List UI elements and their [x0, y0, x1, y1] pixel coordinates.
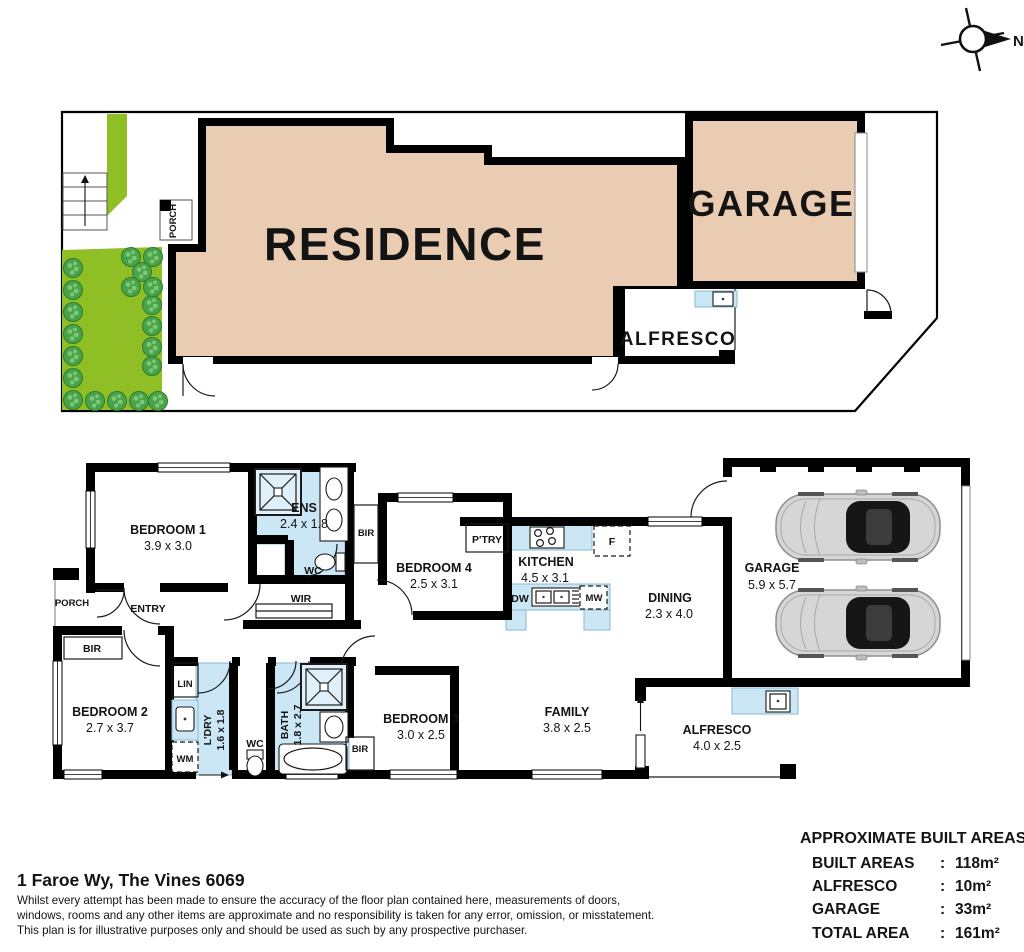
site-residence-label: RESIDENCE: [264, 218, 546, 270]
address: 1 Faroe Wy, The Vines 6069: [17, 870, 245, 890]
area-row-separator: :: [940, 901, 945, 918]
alfresco-dims: 4.0 x 2.5: [693, 739, 741, 753]
bedroom4-dims: 2.5 x 3.1: [410, 577, 458, 591]
bedroom4-label: BEDROOM 4: [396, 561, 472, 575]
wir-label: WIR: [291, 593, 312, 605]
window: [648, 517, 702, 526]
car-2: [776, 586, 940, 660]
laundry-trough-icon: [172, 700, 198, 740]
bath-label: BATH: [279, 711, 291, 739]
area-row-separator: :: [940, 855, 945, 872]
site-alfresco-label: ALFRESCO: [620, 329, 737, 350]
areas-table-title: APPROXIMATE BUILT AREAS: [800, 830, 1024, 847]
wm-label: WM: [177, 754, 194, 765]
mw-label: MW: [586, 593, 603, 604]
cooktop-icon: [530, 527, 564, 548]
ens-dims: 2.4 x 1.8: [280, 517, 328, 531]
family-label: FAMILY: [545, 705, 590, 719]
laundry-dims: 1.6 x 1.8: [215, 709, 227, 750]
bedroom3-dims: 3.0 x 2.5: [397, 728, 445, 742]
ens-label: ENS: [291, 501, 317, 515]
bath-shower-icon: [301, 664, 347, 710]
kitchen-dims: 4.5 x 3.1: [521, 571, 569, 585]
car-1: [776, 490, 940, 564]
dw-label: DW: [511, 593, 529, 605]
garage-label: GARAGE: [745, 561, 800, 575]
bir3-label: BIR: [352, 744, 369, 755]
island-cabinet: [584, 610, 610, 630]
alfresco-sink-icon: [766, 691, 790, 712]
window: [532, 770, 602, 779]
bedroom1-dims: 3.9 x 3.0: [144, 539, 192, 553]
window: [158, 463, 230, 472]
dining-label: DINING: [648, 591, 692, 605]
garage-roller-door: [962, 486, 970, 660]
window: [398, 493, 453, 502]
wir-shelf: [256, 604, 332, 618]
bath-vanity-icon: [320, 712, 348, 742]
area-row-value: 161m²: [955, 925, 1000, 942]
site-garage-label: GARAGE: [687, 183, 854, 224]
area-row-separator: :: [940, 878, 945, 895]
lin-label: LIN: [177, 679, 192, 690]
bedroom1-label: BEDROOM 1: [130, 523, 206, 537]
bath-dims: 1.8 x 2.7: [292, 704, 304, 745]
site-alfresco: ALFRESCO: [617, 289, 737, 364]
site-garage-door: [855, 133, 867, 272]
area-row-value: 10m²: [955, 878, 991, 895]
window: [390, 770, 457, 779]
area-row-label: TOTAL AREA: [812, 925, 910, 942]
family-dims: 3.8 x 2.5: [543, 721, 591, 735]
bedroom3-label: BEDROOM 3: [383, 712, 459, 726]
garage-dims: 5.9 x 5.7: [748, 578, 796, 592]
alfresco-label: ALFRESCO: [683, 723, 752, 737]
area-row-separator: :: [940, 925, 945, 942]
alfresco-post: [780, 764, 796, 779]
site-plan: PORCH RESIDENCE GARAGE ALFRESCO: [62, 112, 937, 411]
floor-plan: BEDROOM 1 3.9 x 3.0 ENS 2.4 x 1.8 WC BIR…: [53, 458, 970, 779]
area-row-label: BUILT AREAS: [812, 855, 914, 872]
porch-label: PORCH: [55, 598, 89, 609]
dining-dims: 2.3 x 4.0: [645, 607, 693, 621]
site-porch-label: PORCH: [168, 204, 179, 238]
compass-north-label: N: [1013, 33, 1024, 50]
disclaimer-line: This plan is for illustrative purposes o…: [17, 924, 527, 937]
window: [86, 491, 95, 548]
compass-circle: [960, 26, 986, 52]
kitchen-sink-icon: [532, 588, 582, 606]
kitchen-label: KITCHEN: [518, 555, 574, 569]
floor-plan-page: N PORCH RESIDENCE GARAGE: [0, 0, 1024, 952]
site-porch: PORCH: [160, 200, 192, 240]
compass: N: [941, 8, 1024, 71]
area-row-value: 118m²: [955, 855, 999, 872]
disclaimer-line: windows, rooms and any other items are a…: [16, 909, 654, 922]
area-row-label: ALFRESCO: [812, 878, 897, 895]
bedroom2-label: BEDROOM 2: [72, 705, 148, 719]
window: [64, 770, 102, 779]
wc2-toilet-icon: [247, 750, 263, 776]
footer: 1 Faroe Wy, The Vines 6069 Whilst every …: [16, 870, 654, 937]
bathtub-icon: [279, 744, 347, 774]
areas-table: APPROXIMATE BUILT AREAS BUILT AREAS : 11…: [800, 830, 1024, 942]
disclaimer-line: Whilst every attempt has been made to en…: [17, 894, 620, 907]
stairs-icon: [63, 173, 107, 230]
fridge-label: F: [609, 536, 616, 548]
entry-label: ENTRY: [130, 603, 165, 615]
sliding-door: [636, 695, 645, 768]
bir2-label: BIR: [83, 643, 102, 655]
bir-label: BIR: [358, 528, 375, 539]
wc-label: WC: [304, 565, 322, 577]
area-row-value: 33m²: [955, 901, 991, 918]
laundry-label: L'DRY: [202, 715, 214, 746]
wc2-label: WC: [246, 738, 264, 750]
area-row-label: GARAGE: [812, 901, 880, 918]
window: [53, 661, 62, 745]
bedroom2-dims: 2.7 x 3.7: [86, 721, 134, 735]
pantry-label: P'TRY: [472, 534, 502, 546]
